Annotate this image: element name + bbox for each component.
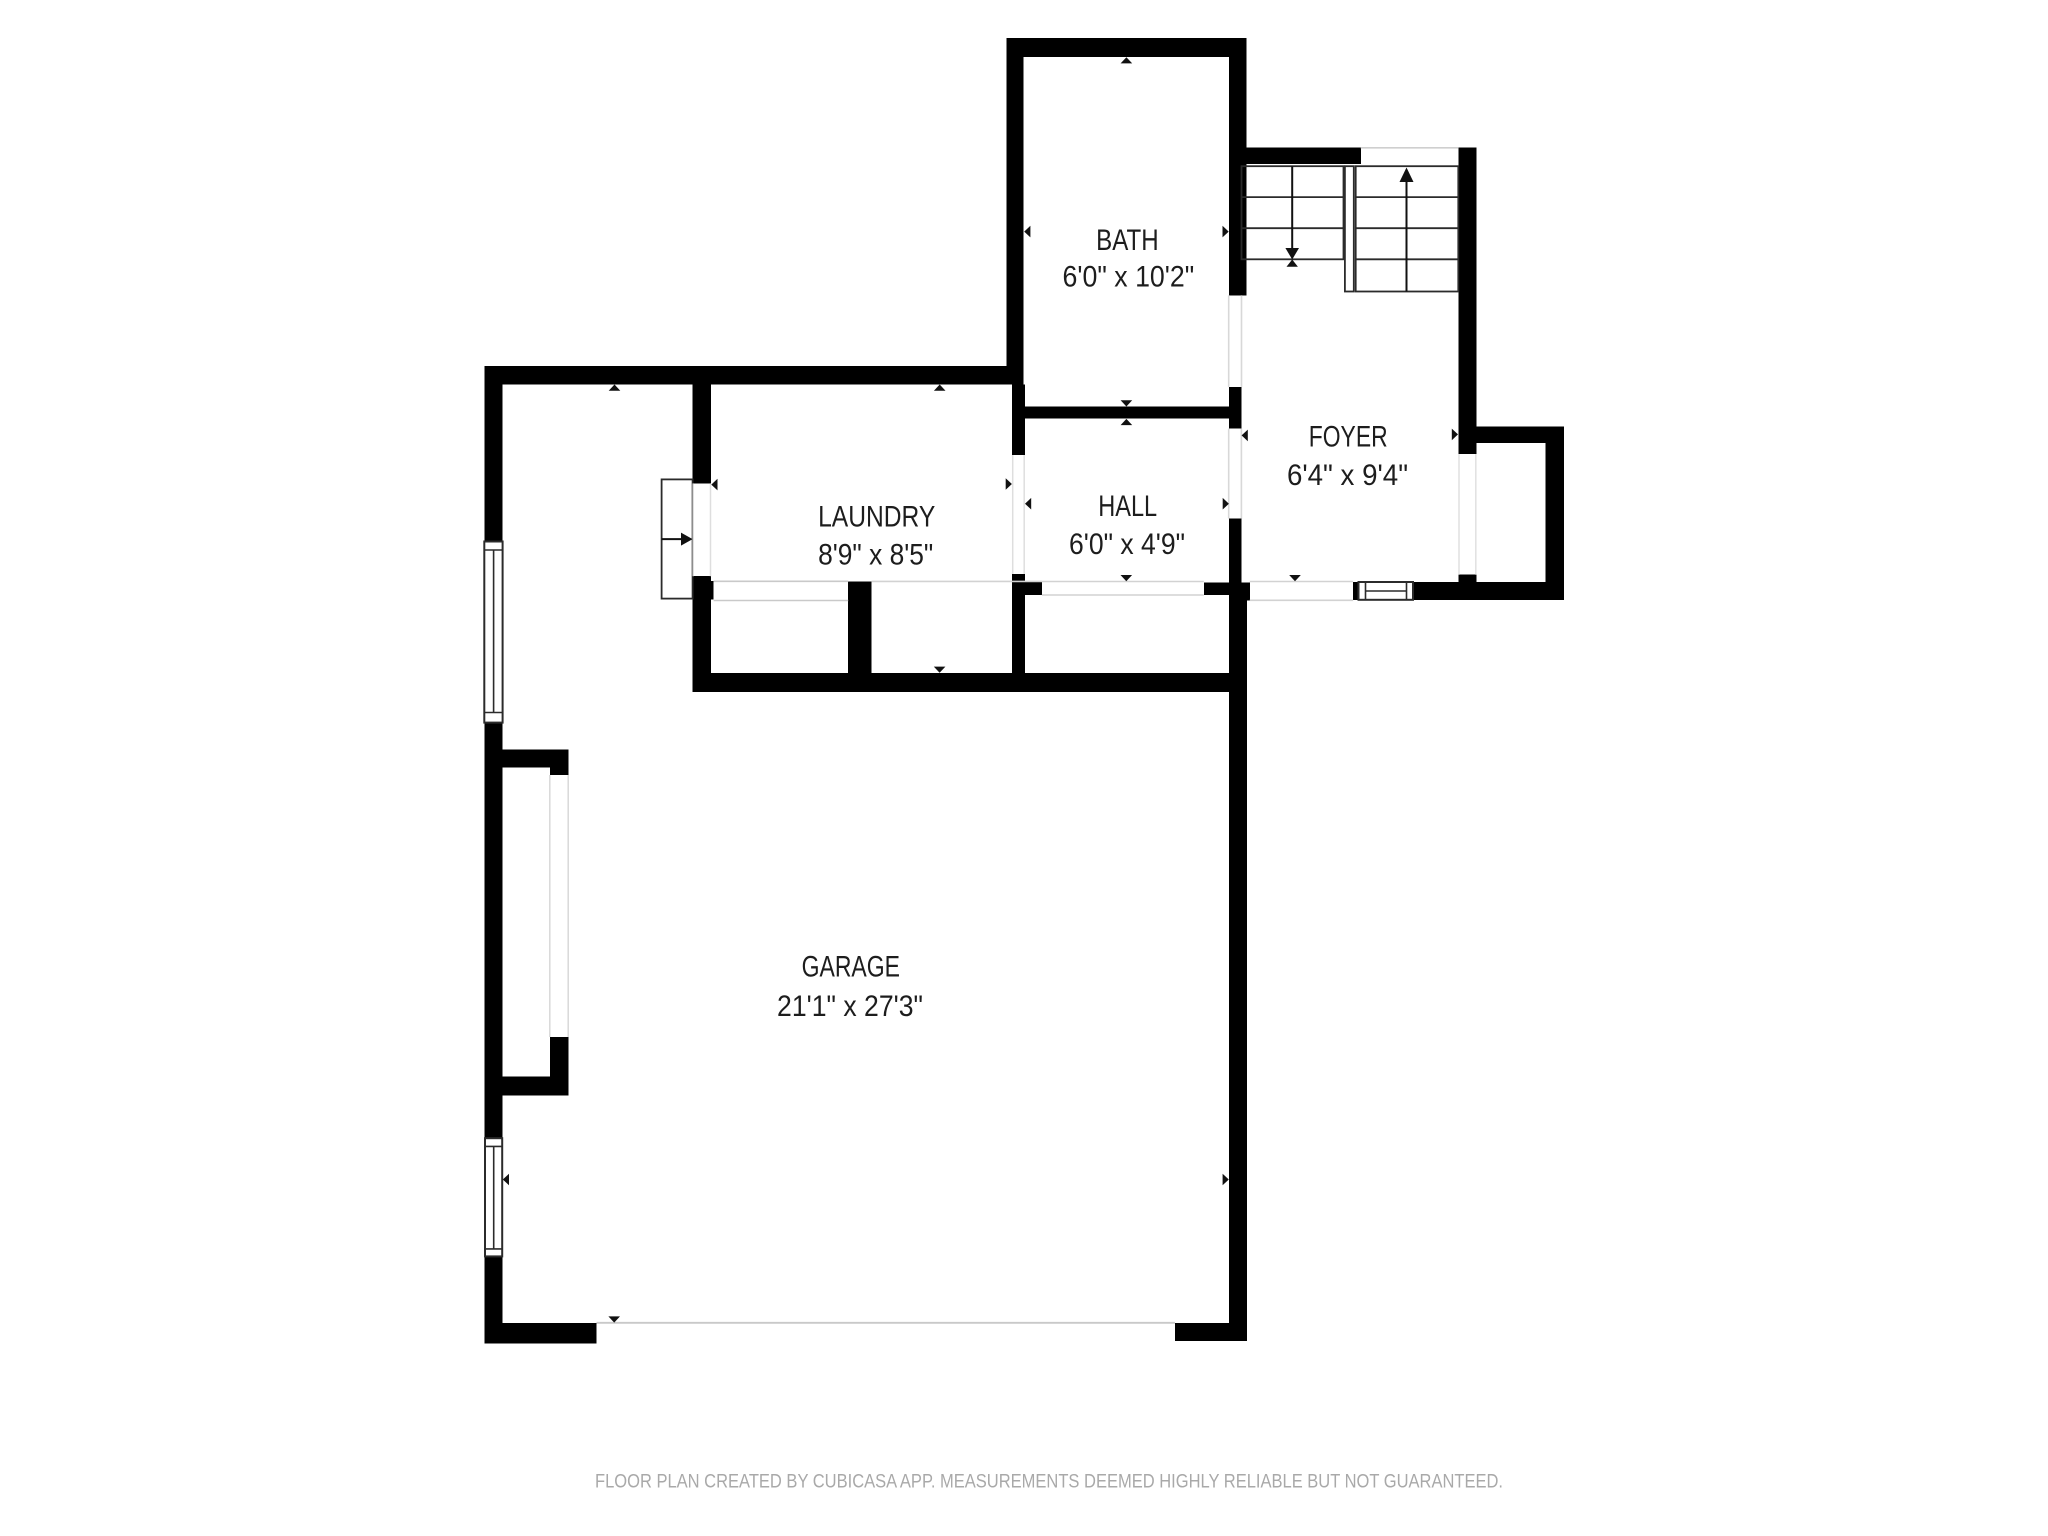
svg-text:6'4" x 9'4": 6'4" x 9'4" <box>1287 459 1408 492</box>
svg-text:GARAGE: GARAGE <box>802 951 900 984</box>
svg-text:8'9" x 8'5": 8'9" x 8'5" <box>818 538 933 571</box>
svg-text:6'0" x 4'9": 6'0" x 4'9" <box>1069 528 1185 561</box>
svg-text:HALL: HALL <box>1098 490 1157 523</box>
svg-text:FLOOR PLAN CREATED BY CUBICASA: FLOOR PLAN CREATED BY CUBICASA APP. MEAS… <box>595 1471 1503 1492</box>
svg-text:21'1" x 27'3": 21'1" x 27'3" <box>777 990 923 1023</box>
svg-text:6'0" x 10'2": 6'0" x 10'2" <box>1063 261 1195 294</box>
svg-text:BATH: BATH <box>1096 224 1159 257</box>
svg-text:FOYER: FOYER <box>1309 420 1388 453</box>
svg-text:LAUNDRY: LAUNDRY <box>818 500 935 533</box>
